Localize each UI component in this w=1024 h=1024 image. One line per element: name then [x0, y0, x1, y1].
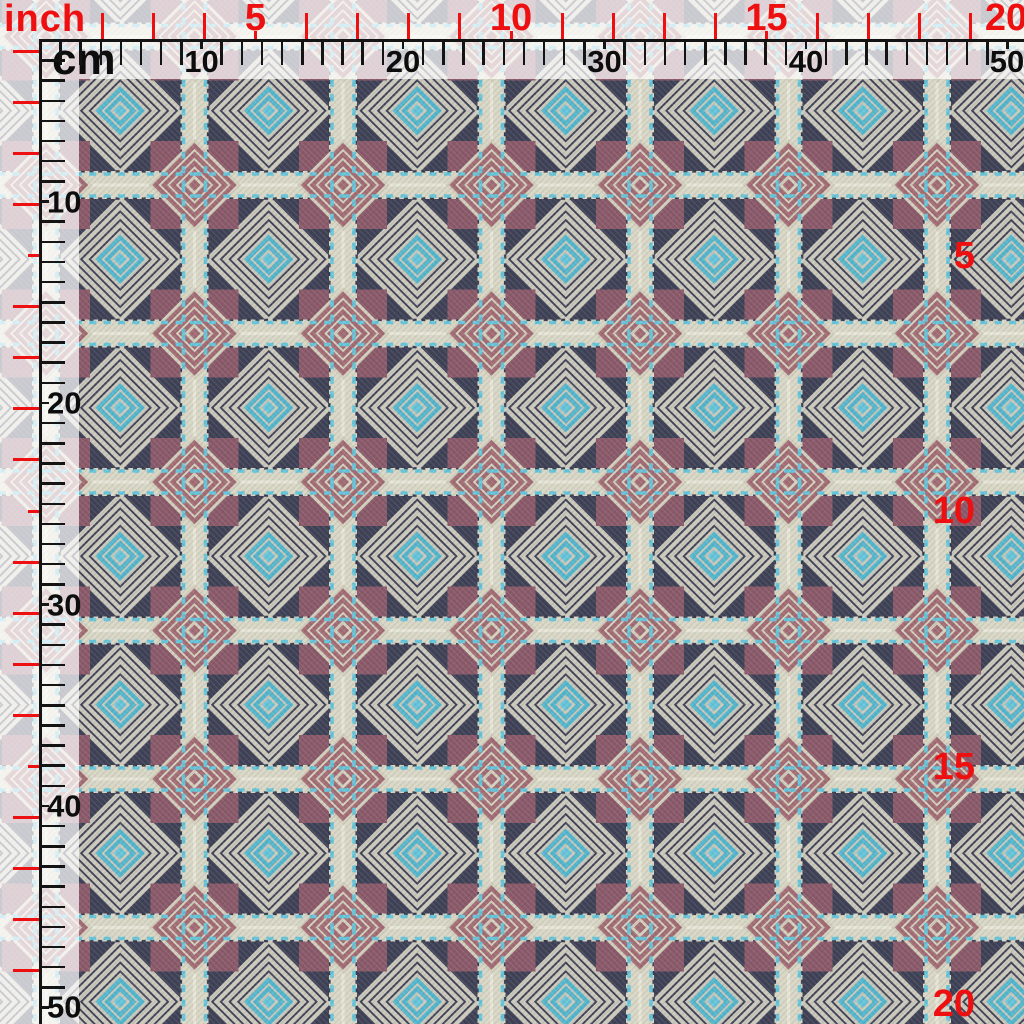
- inch-tick: [13, 458, 39, 461]
- cm-tick: [623, 41, 626, 65]
- cm-tick: [361, 41, 364, 65]
- inch-major-tick: [28, 765, 39, 768]
- cm-tick: [41, 946, 65, 949]
- cm-tick-label: 30: [587, 46, 621, 77]
- cm-tick: [41, 644, 65, 647]
- inch-tick: [13, 152, 39, 155]
- inch-tick: [305, 13, 308, 39]
- cm-tick: [583, 41, 586, 65]
- inch-major-tick: [28, 510, 39, 513]
- inch-tick: [867, 13, 870, 39]
- cm-tick: [41, 100, 65, 103]
- inch-tick: [13, 816, 39, 819]
- cm-tick: [885, 41, 888, 65]
- inch-tick: [407, 13, 410, 39]
- cm-tick-label: 40: [789, 46, 823, 77]
- ruler-layer: inch cm 51015201020304050 51015201020304…: [0, 0, 1024, 1024]
- cm-tick: [220, 41, 223, 65]
- cm-tick: [523, 41, 526, 65]
- inch-tick: [13, 969, 39, 972]
- cm-tick: [41, 724, 65, 727]
- cm-tick: [41, 785, 65, 788]
- cm-tick: [120, 41, 123, 65]
- cm-tick: [79, 41, 82, 65]
- inch-tick: [13, 305, 39, 308]
- cm-tick: [41, 79, 65, 82]
- cm-tick: [41, 361, 65, 364]
- cm-tick: [41, 281, 65, 284]
- cm-tick: [644, 41, 647, 65]
- cm-tick-label: 20: [47, 388, 81, 419]
- inch-tick: [13, 918, 39, 921]
- cm-tick: [41, 986, 65, 989]
- cm-tick-label: 50: [990, 46, 1024, 77]
- cm-tick: [41, 623, 65, 626]
- cm-tick: [41, 382, 65, 385]
- cm-tick: [543, 41, 546, 65]
- cm-tick: [321, 41, 324, 65]
- cm-tick: [180, 41, 183, 65]
- inch-tick: [13, 356, 39, 359]
- fabric-preview-stage: inch cm 51015201020304050 51015201020304…: [0, 0, 1024, 1024]
- cm-tick: [160, 41, 163, 65]
- inch-tick: [13, 407, 39, 410]
- cm-tick: [41, 825, 65, 828]
- cm-tick: [41, 301, 65, 304]
- cm-tick: [41, 543, 65, 546]
- cm-tick: [241, 41, 244, 65]
- inch-tick-label: 15: [933, 748, 975, 786]
- cm-tick: [41, 865, 65, 868]
- inch-tick-label: 20: [933, 985, 975, 1023]
- cm-tick: [41, 180, 65, 183]
- cm-tick: [41, 422, 65, 425]
- cm-ruler-baseline-horizontal: [39, 39, 1024, 42]
- inch-tick: [561, 13, 564, 39]
- cm-tick: [704, 41, 707, 65]
- cm-tick: [41, 744, 65, 747]
- cm-tick: [41, 704, 65, 707]
- cm-tick: [724, 41, 727, 65]
- inch-tick-label: 5: [954, 237, 975, 275]
- cm-tick: [41, 120, 65, 123]
- inch-major-tick: [28, 254, 39, 257]
- cm-tick: [41, 926, 65, 929]
- cm-tick: [41, 241, 65, 244]
- inch-tick: [663, 13, 666, 39]
- inch-tick: [13, 663, 39, 666]
- inch-tick-label: 5: [245, 0, 266, 37]
- inch-tick: [612, 13, 615, 39]
- cm-ruler-baseline-vertical: [39, 39, 42, 1024]
- inch-tick: [203, 13, 206, 39]
- cm-tick: [41, 563, 65, 566]
- cm-tick: [41, 764, 65, 767]
- cm-tick: [825, 41, 828, 65]
- cm-tick: [41, 220, 65, 223]
- inch-tick: [458, 13, 461, 39]
- cm-tick: [41, 462, 65, 465]
- cm-tick: [845, 41, 848, 65]
- inch-tick: [356, 13, 359, 39]
- cm-tick-label: 20: [386, 46, 420, 77]
- cm-tick: [563, 41, 566, 65]
- cm-tick: [442, 41, 445, 65]
- cm-tick: [41, 503, 65, 506]
- cm-tick: [281, 41, 284, 65]
- cm-tick: [744, 41, 747, 65]
- cm-tick: [41, 906, 65, 909]
- inch-tick: [918, 13, 921, 39]
- cm-tick: [41, 523, 65, 526]
- cm-tick: [906, 41, 909, 65]
- cm-tick: [41, 341, 65, 344]
- cm-tick: [41, 583, 65, 586]
- cm-tick: [341, 41, 344, 65]
- inch-tick-label: 15: [745, 0, 787, 37]
- inch-tick: [13, 101, 39, 104]
- cm-tick: [462, 41, 465, 65]
- cm-tick: [41, 966, 65, 969]
- cm-tick: [664, 41, 667, 65]
- cm-tick: [946, 41, 949, 65]
- inch-tick: [816, 13, 819, 39]
- cm-tick-label: 10: [184, 46, 218, 77]
- cm-tick: [966, 41, 969, 65]
- cm-tick: [926, 41, 929, 65]
- cm-tick-label: 50: [47, 992, 81, 1023]
- cm-tick-label: 40: [47, 791, 81, 822]
- cm-tick: [41, 59, 65, 62]
- inch-tick: [13, 714, 39, 717]
- inch-tick: [714, 13, 717, 39]
- cm-tick: [41, 885, 65, 888]
- cm-tick: [482, 41, 485, 65]
- inch-unit-label: inch: [4, 0, 86, 38]
- cm-tick: [301, 41, 304, 65]
- cm-tick: [41, 684, 65, 687]
- inch-tick: [101, 13, 104, 39]
- cm-tick: [865, 41, 868, 65]
- inch-tick: [152, 13, 155, 39]
- cm-tick: [684, 41, 687, 65]
- inch-tick-label: 10: [490, 0, 532, 37]
- cm-tick: [100, 41, 103, 65]
- cm-tick: [422, 41, 425, 65]
- inch-tick: [13, 867, 39, 870]
- cm-tick: [382, 41, 385, 65]
- cm-tick: [785, 41, 788, 65]
- inch-tick: [13, 50, 39, 53]
- cm-tick: [41, 160, 65, 163]
- cm-tick: [41, 482, 65, 485]
- cm-tick-label: 10: [47, 186, 81, 217]
- cm-tick: [503, 41, 506, 65]
- cm-tick: [41, 140, 65, 143]
- cm-tick: [41, 442, 65, 445]
- inch-tick: [969, 13, 972, 39]
- inch-tick: [13, 612, 39, 615]
- cm-tick: [140, 41, 143, 65]
- cm-tick-label: 30: [47, 589, 81, 620]
- cm-tick: [261, 41, 264, 65]
- cm-tick: [41, 845, 65, 848]
- cm-tick: [41, 664, 65, 667]
- inch-tick-label: 10: [933, 492, 975, 530]
- cm-tick: [764, 41, 767, 65]
- inch-tick: [13, 561, 39, 564]
- inch-tick: [13, 203, 39, 206]
- inch-tick-label: 20: [985, 0, 1024, 37]
- cm-tick: [986, 41, 989, 65]
- cm-tick: [41, 321, 65, 324]
- cm-tick: [41, 261, 65, 264]
